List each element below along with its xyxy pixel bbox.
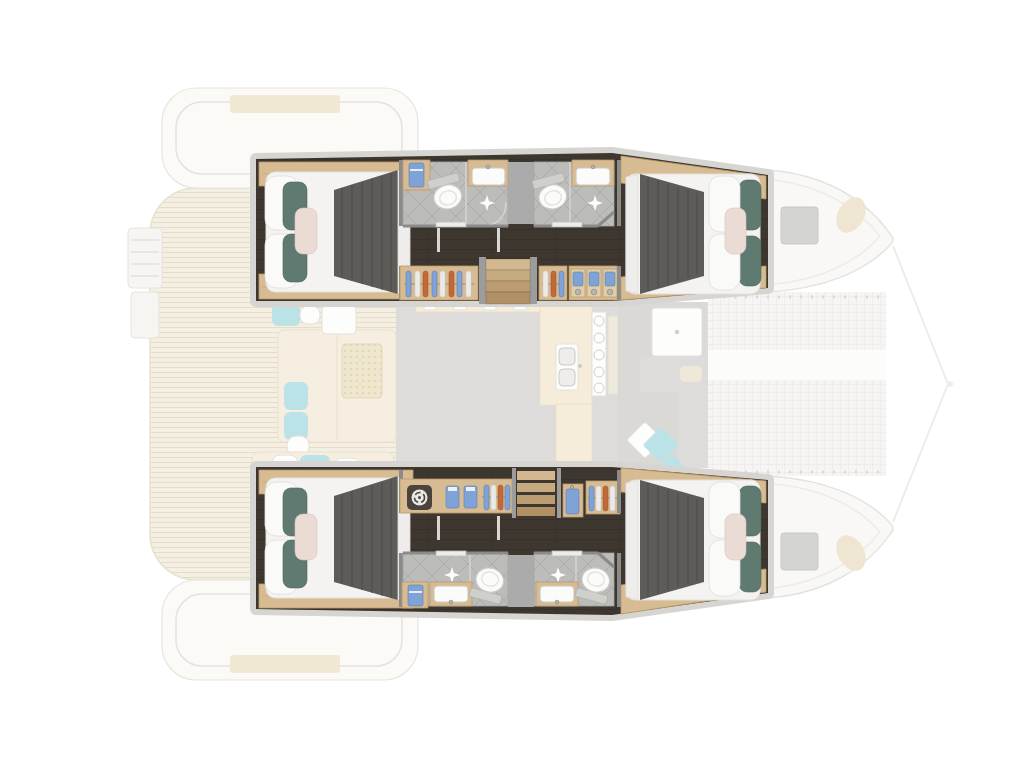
drawer-knob	[607, 289, 613, 295]
double-bed	[626, 480, 761, 600]
bow-top	[768, 170, 893, 292]
galley-double-sink	[556, 344, 582, 390]
bow-bridle	[893, 246, 953, 522]
drawer-unit	[569, 266, 617, 300]
technical-locker	[508, 162, 534, 224]
aft-cabin	[259, 470, 413, 608]
double-bed	[265, 476, 410, 600]
cross-beam	[708, 350, 886, 380]
scatter-cushion	[272, 304, 300, 326]
bathroom-aft	[402, 551, 508, 608]
wardrobe-aft	[400, 266, 478, 300]
door-post	[437, 516, 440, 540]
laundry-wardrobe	[400, 479, 512, 513]
aft-cabin	[259, 162, 413, 299]
washbasin	[472, 168, 505, 185]
wicker-table	[342, 344, 382, 398]
washbasin	[540, 586, 574, 602]
stair-stringer	[530, 257, 537, 304]
bulkhead	[617, 470, 621, 513]
bathroom-door	[552, 551, 582, 556]
trampoline	[708, 292, 886, 476]
hanging-clothes	[543, 271, 564, 297]
towel	[408, 585, 423, 606]
drawer-knob	[591, 289, 597, 295]
wardrobe-forward	[586, 481, 620, 514]
drawer-knob	[575, 289, 581, 295]
stove	[592, 312, 606, 396]
forward-cabin	[621, 468, 766, 614]
hanging-shirt	[566, 489, 579, 514]
door-post	[497, 516, 500, 540]
stair-stringer	[557, 468, 561, 518]
swim-ladder	[128, 228, 162, 338]
washbasin	[576, 168, 610, 185]
catamaran-floor-plan: Catamaran four-cabin deck plan	[0, 0, 1024, 768]
bathroom-door	[436, 551, 466, 556]
deck-hatch	[781, 533, 818, 570]
door-post	[437, 228, 440, 252]
cushion-pad	[680, 366, 702, 382]
door-post	[497, 228, 500, 252]
catamaran-floor-plan-page: Catamaran four-cabin deck plan	[0, 0, 1024, 768]
coachroof-wood-strip	[230, 95, 340, 113]
fridge-cabinet	[608, 316, 618, 394]
washing-machine	[407, 485, 432, 510]
deck-hatch	[781, 207, 818, 244]
staircase	[479, 257, 537, 304]
coachroof-wood-strip	[230, 655, 340, 673]
wardrobe-forward	[539, 266, 567, 300]
folded-shirt	[605, 272, 615, 286]
staircase-shelves	[512, 468, 561, 518]
bulkhead	[399, 160, 403, 226]
folded-shirt	[589, 272, 599, 286]
bathroom-door	[436, 222, 466, 227]
faucet	[591, 165, 595, 169]
bulkhead	[617, 553, 621, 607]
folded-shirt	[573, 272, 583, 286]
bathroom-door	[552, 222, 582, 227]
technical-locker	[508, 555, 534, 607]
stair-stringer	[512, 468, 516, 518]
bathroom-forward	[534, 551, 614, 606]
bathroom-aft	[403, 160, 508, 227]
towel	[409, 163, 424, 187]
bulkhead	[617, 160, 621, 226]
hanging-locker	[563, 484, 583, 517]
forward-cabin	[621, 156, 766, 300]
lower-hull-cabins	[256, 467, 768, 615]
bathroom-forward	[532, 160, 614, 227]
faucet	[555, 600, 559, 604]
upper-hull-cabins	[256, 153, 768, 304]
side-table	[322, 306, 356, 334]
faucet	[486, 165, 490, 169]
washbasin	[434, 586, 468, 602]
galley-island	[556, 404, 592, 466]
bow-bottom	[768, 476, 893, 598]
double-bed	[265, 170, 410, 294]
faucet	[449, 600, 453, 604]
stair-stringer	[479, 257, 486, 304]
bulkhead	[617, 266, 621, 300]
double-bed	[626, 174, 761, 294]
